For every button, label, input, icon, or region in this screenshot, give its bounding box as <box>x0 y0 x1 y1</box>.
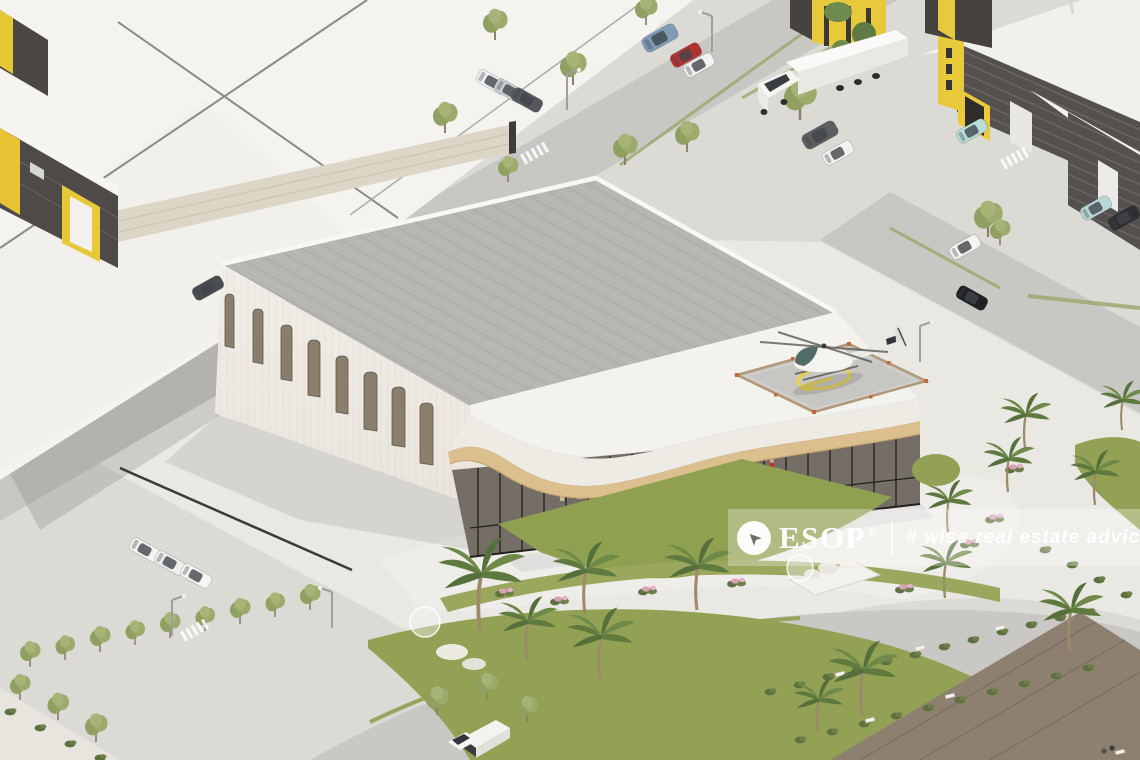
yellow-accent-stripe <box>0 128 20 215</box>
brand-name: ESOP <box>779 522 866 553</box>
compass-arrow-icon: ➤ <box>737 521 771 555</box>
seated-person <box>1109 745 1114 750</box>
scene-illustration <box>0 0 1140 760</box>
esop-logo: ➤ ESOP ® <box>737 521 877 555</box>
registered-mark: ® <box>868 527 877 539</box>
tagline: # wise real estate advice <box>906 527 1140 549</box>
vine-foliage <box>824 2 852 22</box>
seated-person <box>1101 748 1106 753</box>
watermark-band: ➤ ESOP ® # wise real estate advice <box>728 509 1140 566</box>
rendering-canvas: ➤ ESOP ® # wise real estate advice <box>0 0 1140 760</box>
divider-line <box>891 521 893 555</box>
